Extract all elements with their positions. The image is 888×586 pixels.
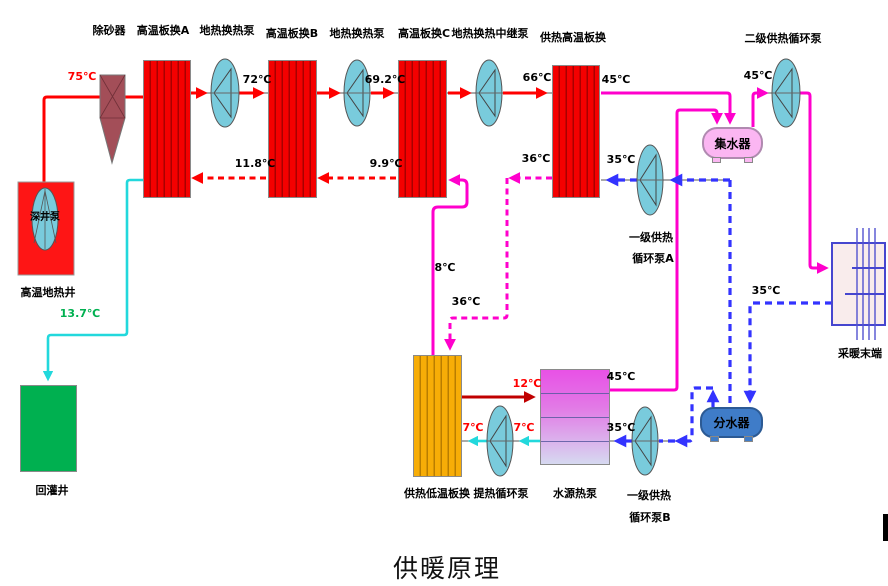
heating-terminal-icon xyxy=(832,228,885,340)
heating-return-line xyxy=(617,180,832,441)
temp-8: 8℃ xyxy=(435,261,456,274)
hx-a-label: 高温板换A xyxy=(137,24,190,37)
temp-72: 72℃ xyxy=(243,73,272,86)
temp-75: 75℃ xyxy=(68,70,97,83)
water-source-heat-pump-box xyxy=(540,369,610,465)
pump-geothermal-1-label: 地热换热泵 xyxy=(200,24,255,37)
temp-11-8: 11.8℃ xyxy=(235,157,275,170)
hx-heat-low-label: 供热低温板换 xyxy=(404,487,470,500)
pump-geothermal-2-label: 地热换热泵 xyxy=(330,27,385,40)
heat-pump-label: 水源热泵 xyxy=(553,487,597,500)
heating-principle-diagram: 集水器 分水器 除砂器 高温板换A 地热换热泵 高温板换B 地热换热泵 高温板换… xyxy=(0,0,888,586)
pump-geothermal-2-icon xyxy=(344,60,370,126)
temp-36-low: 36℃ xyxy=(452,295,481,308)
temp-9-9: 9.9℃ xyxy=(370,157,403,170)
heating-branch-dashed-line xyxy=(450,178,552,340)
hx-a-box xyxy=(143,60,191,198)
temp-12: 12℃ xyxy=(513,377,542,390)
hx-heat-high-box xyxy=(552,65,600,198)
temp-7-b: 7℃ xyxy=(514,421,535,434)
temp-66: 66℃ xyxy=(523,71,552,84)
pump-relay-label: 地热换热中继泵 xyxy=(452,27,529,40)
tank-leg xyxy=(710,436,719,442)
temp-13-7: 13.7℃ xyxy=(60,307,100,320)
tank-leg xyxy=(744,157,753,163)
sand-remover-icon xyxy=(100,75,125,163)
reinjection-well-label: 回灌井 xyxy=(36,484,69,497)
hx-heat-high-label: 供热高温板换 xyxy=(540,31,606,44)
hx-b-box xyxy=(268,60,317,198)
pump-geothermal-1-icon xyxy=(211,59,239,127)
pump-secondary-label: 二级供热循环泵 xyxy=(745,32,822,45)
terminal-label: 采暖末端 xyxy=(838,347,882,360)
temp-45-pump2: 45℃ xyxy=(744,69,773,82)
temp-7-a: 7℃ xyxy=(463,421,484,434)
temp-45-hx-out: 45℃ xyxy=(602,73,631,86)
temp-69-2: 69.2℃ xyxy=(365,73,405,86)
sand-remover-label: 除砂器 xyxy=(93,24,126,37)
pump-extract-label: 提热循环泵 xyxy=(474,487,529,500)
collector-tank: 集水器 xyxy=(702,127,763,159)
hx-b-label: 高温板换B xyxy=(266,27,318,40)
pump-primary-b-label-line2: 循环泵B xyxy=(629,511,670,524)
pump-primary-b-label-line1: 一级供热 xyxy=(627,489,671,502)
deep-well-pump-label: 深井泵 xyxy=(30,212,60,224)
hx-c-box xyxy=(398,60,447,198)
temp-45-hp-out: 45℃ xyxy=(607,370,636,383)
temp-35-hp-in: 35℃ xyxy=(607,421,636,434)
pump-extract-icon xyxy=(487,406,513,476)
collector-label: 集水器 xyxy=(714,135,750,152)
pump-primary-a-label-line2: 循环泵A xyxy=(632,252,674,265)
reinjection-line xyxy=(48,180,540,441)
reinjection-well-box xyxy=(20,385,77,472)
pump-primary-a-label-line1: 一级供热 xyxy=(629,231,673,244)
temp-35-terminal: 35℃ xyxy=(752,284,781,297)
temp-36-high: 36℃ xyxy=(522,152,551,165)
pump-primary-b-icon xyxy=(632,407,658,475)
pump-primary-a-icon xyxy=(637,145,663,215)
tank-leg xyxy=(744,436,753,442)
temp-35-hx-in: 35℃ xyxy=(607,153,636,166)
diagram-title: 供暖原理 xyxy=(393,549,501,585)
pump-relay-icon xyxy=(476,60,502,126)
pump-secondary-icon xyxy=(772,59,800,127)
hot-well-label: 高温地热井 xyxy=(21,286,76,299)
distributor-label: 分水器 xyxy=(713,414,749,431)
hx-heat-low-box xyxy=(413,355,462,477)
text-cursor-bar xyxy=(883,514,888,541)
tank-leg xyxy=(712,157,721,163)
hx-c-label: 高温板换C xyxy=(398,27,450,40)
distributor-tank: 分水器 xyxy=(700,407,763,438)
